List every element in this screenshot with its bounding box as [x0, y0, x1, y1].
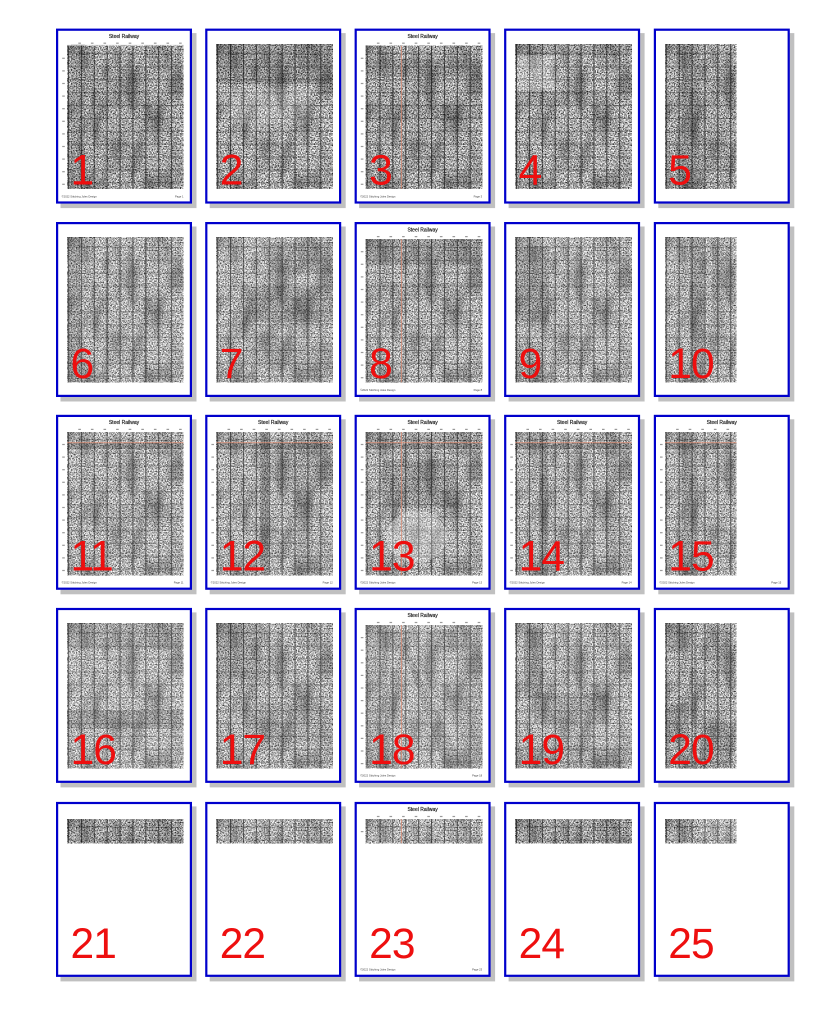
svg-text:Page 23: Page 23	[472, 968, 483, 972]
svg-text:©2022 Stitching Jules Design: ©2022 Stitching Jules Design	[360, 388, 396, 392]
svg-text:12: 12	[220, 534, 265, 581]
svg-text:Page 13: Page 13	[472, 581, 483, 585]
svg-text:13: 13	[369, 534, 414, 581]
svg-text:18: 18	[369, 727, 414, 774]
svg-text:25: 25	[668, 921, 713, 968]
svg-text:Steel Railway: Steel Railway	[258, 420, 289, 426]
svg-text:Steel Railway: Steel Railway	[407, 34, 438, 40]
svg-text:Steel Railway: Steel Railway	[407, 807, 438, 813]
svg-text:©2022 Stitching Jules Design: ©2022 Stitching Jules Design	[510, 581, 546, 585]
svg-text:21: 21	[71, 921, 116, 968]
svg-text:©2022 Stitching Jules Design: ©2022 Stitching Jules Design	[360, 774, 396, 778]
svg-text:Page 15: Page 15	[771, 581, 782, 585]
svg-text:Page 11: Page 11	[174, 581, 184, 585]
svg-text:3: 3	[369, 148, 392, 195]
svg-text:24: 24	[519, 921, 565, 968]
svg-text:16: 16	[71, 727, 116, 774]
svg-text:Page 12: Page 12	[323, 581, 334, 585]
svg-text:Steel Railway: Steel Railway	[407, 227, 438, 233]
svg-text:14: 14	[519, 534, 565, 581]
svg-text:Page 8: Page 8	[474, 388, 483, 392]
svg-text:7: 7	[220, 341, 243, 388]
svg-text:15: 15	[668, 534, 713, 581]
svg-text:©2022 Stitching Jules Design: ©2022 Stitching Jules Design	[211, 581, 247, 585]
svg-text:©2022 Stitching Jules Design: ©2022 Stitching Jules Design	[360, 194, 396, 198]
svg-text:Steel Railway: Steel Railway	[557, 420, 588, 426]
svg-text:19: 19	[519, 727, 564, 774]
svg-text:Steel Railway: Steel Railway	[407, 420, 438, 426]
svg-text:Steel Railway: Steel Railway	[707, 420, 738, 426]
svg-text:©2022 Stitching Jules Design: ©2022 Stitching Jules Design	[62, 194, 98, 198]
svg-text:1: 1	[71, 148, 94, 195]
svg-text:2: 2	[220, 148, 243, 195]
svg-text:Page 14: Page 14	[622, 581, 633, 585]
svg-text:©2022 Stitching Jules Design: ©2022 Stitching Jules Design	[659, 581, 695, 585]
svg-text:Page 18: Page 18	[472, 774, 483, 778]
svg-text:6: 6	[71, 341, 94, 388]
svg-text:Steel Railway: Steel Railway	[407, 613, 438, 619]
svg-text:5: 5	[668, 148, 691, 195]
svg-text:10: 10	[668, 341, 713, 388]
svg-text:©2022 Stitching Jules Design: ©2022 Stitching Jules Design	[62, 581, 98, 585]
svg-text:4: 4	[519, 148, 542, 195]
svg-text:20: 20	[668, 727, 713, 774]
svg-text:Steel Railway: Steel Railway	[109, 34, 140, 40]
svg-text:22: 22	[220, 921, 265, 968]
svg-text:8: 8	[369, 341, 392, 388]
svg-text:Page 3: Page 3	[474, 194, 483, 198]
svg-text:©2022 Stitching Jules Design: ©2022 Stitching Jules Design	[360, 581, 396, 585]
svg-text:11: 11	[71, 534, 113, 581]
svg-text:23: 23	[369, 921, 414, 968]
svg-text:Page 1: Page 1	[175, 194, 184, 198]
svg-text:17: 17	[220, 727, 265, 774]
svg-text:Steel Railway: Steel Railway	[109, 420, 140, 426]
svg-text:©2022 Stitching Jules Design: ©2022 Stitching Jules Design	[360, 968, 396, 972]
svg-text:9: 9	[519, 341, 542, 388]
